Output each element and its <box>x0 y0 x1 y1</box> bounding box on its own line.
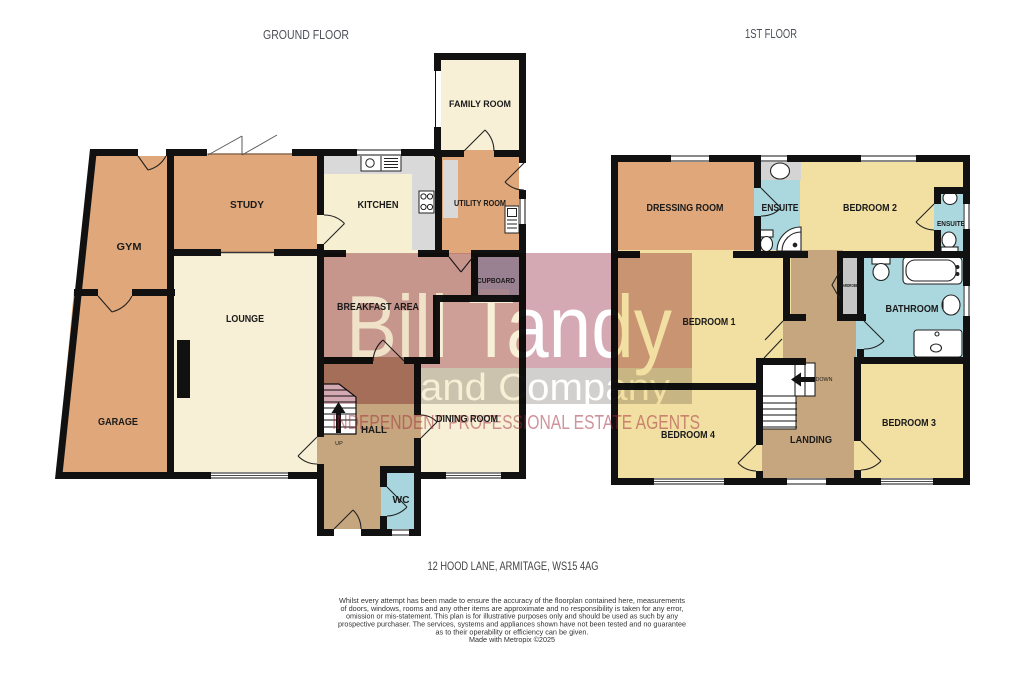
svg-text:KITCHEN: KITCHEN <box>358 199 399 211</box>
svg-text:BEDROOM 1: BEDROOM 1 <box>683 316 736 328</box>
svg-text:ENSUITE: ENSUITE <box>762 203 799 214</box>
svg-text:UTILITY ROOM: UTILITY ROOM <box>454 198 506 208</box>
svg-text:LANDING: LANDING <box>790 434 832 446</box>
svg-text:Whilst every attempt has been: Whilst every attempt has been made to en… <box>339 598 686 605</box>
svg-text:GARAGE: GARAGE <box>98 416 138 428</box>
svg-text:BREAKFAST AREA: BREAKFAST AREA <box>337 301 419 313</box>
svg-text:GROUND FLOOR: GROUND FLOOR <box>263 27 349 42</box>
svg-text:STUDY: STUDY <box>230 199 264 211</box>
svg-text:1ST FLOOR: 1ST FLOOR <box>745 26 797 41</box>
svg-text:of doors, windows, rooms and a: of doors, windows, rooms and any other i… <box>341 606 684 613</box>
svg-text:INDEPENDENT PROFESSIONAL ESTAT: INDEPENDENT PROFESSIONAL ESTATE AGENTS <box>332 412 700 434</box>
svg-text:DRESSING ROOM: DRESSING ROOM <box>647 202 724 214</box>
svg-text:GYM: GYM <box>117 241 142 253</box>
svg-text:FAMILY ROOM: FAMILY ROOM <box>449 99 511 110</box>
svg-text:DINING ROOM: DINING ROOM <box>436 413 498 425</box>
svg-text:CUPBOARD: CUPBOARD <box>477 278 515 285</box>
svg-text:BATHROOM: BATHROOM <box>886 303 939 315</box>
svg-text:LOUNGE: LOUNGE <box>226 313 264 325</box>
svg-text:WARDROBE: WARDROBE <box>840 283 858 288</box>
svg-text:omission or mis-statement. Thi: omission or mis-statement. This plan is … <box>346 614 679 621</box>
svg-text:UP: UP <box>335 441 343 447</box>
svg-text:BEDROOM 4: BEDROOM 4 <box>661 429 715 441</box>
svg-text:Made with Metropix ©2025: Made with Metropix ©2025 <box>469 636 555 644</box>
svg-text:WC: WC <box>393 494 410 506</box>
svg-text:BEDROOM 3: BEDROOM 3 <box>882 417 936 429</box>
svg-text:as to their operability or eff: as to their operability or efficiency ca… <box>436 629 589 636</box>
svg-text:12 HOOD LANE, ARMITAGE, WS15 4: 12 HOOD LANE, ARMITAGE, WS15 4AG <box>428 559 599 573</box>
svg-text:DOWN: DOWN <box>816 377 833 383</box>
svg-text:BEDROOM 2: BEDROOM 2 <box>843 202 897 214</box>
svg-text:HALL: HALL <box>361 424 388 436</box>
svg-text:ENSUITE: ENSUITE <box>937 221 965 228</box>
svg-text:prospective purchaser. The ser: prospective purchaser. The services, sys… <box>338 622 686 629</box>
